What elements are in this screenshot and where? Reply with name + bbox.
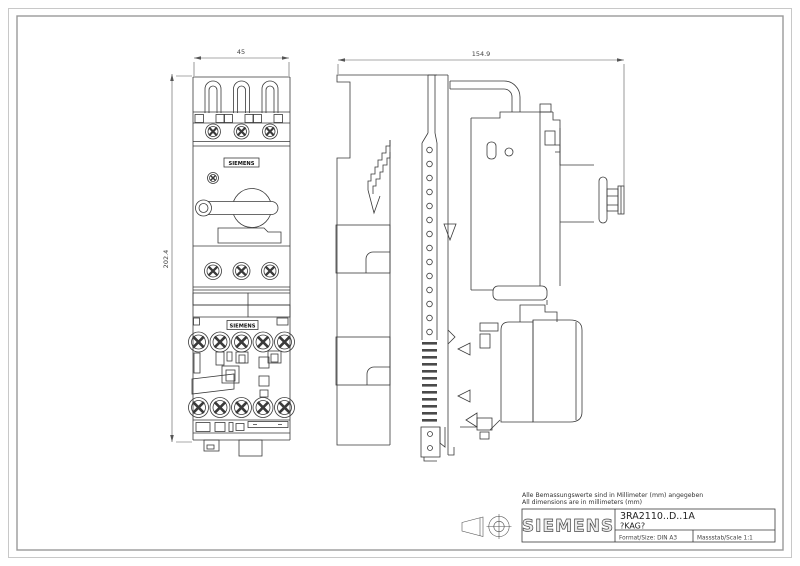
projection-symbol-icon	[462, 514, 512, 539]
dimension-overall-height: 202.4	[162, 74, 192, 442]
note-line-en: All dimensions are in millimeters (mm)	[522, 499, 642, 506]
front-terminal-band	[193, 112, 290, 123]
side-contactor-body	[448, 305, 582, 439]
scale-label: Massstab/Scale 1:1	[697, 536, 753, 542]
drawing-sheet: SIEMENS SIEMENS	[0, 0, 800, 566]
product-number: 3RA2110..D..1A	[620, 511, 695, 522]
front-bottom-tabs	[204, 440, 262, 456]
front-view: SIEMENS SIEMENS	[189, 77, 295, 456]
sheet-border	[9, 9, 792, 558]
dim-overall-depth-value: 154.9	[472, 50, 491, 58]
note-line-de: Alle Bemassungswerte sind in Millimeter …	[522, 492, 703, 499]
dim-overall-height-value: 202.4	[162, 250, 170, 269]
title-block: SIEMENS 3RA2110..D..1A ?KAG? Format/Size…	[522, 509, 775, 542]
side-rotary-shaft	[599, 177, 624, 223]
siemens-logo: SIEMENS	[522, 517, 614, 537]
rotary-handle	[196, 189, 279, 228]
rail-hole-strip	[427, 147, 433, 335]
rail-fins	[422, 342, 437, 422]
side-rail	[421, 75, 454, 461]
dim-front-width-value: 45	[237, 48, 245, 56]
variant-code: ?KAG?	[620, 522, 645, 531]
front-terminal-pins	[205, 81, 278, 113]
front-bottom-band	[193, 420, 290, 433]
dimension-front-width: 45	[194, 48, 289, 76]
side-breaker-body	[444, 81, 594, 305]
device-brand-label-upper: SIEMENS	[224, 158, 259, 167]
device-brand-text-upper: SIEMENS	[229, 161, 255, 167]
general-note: Alle Bemassungswerte sind in Millimeter …	[522, 492, 703, 506]
format-label: Format/Size: DIN A3	[619, 536, 677, 542]
side-view	[336, 75, 624, 461]
contactor-mechanism	[192, 351, 281, 397]
device-brand-text-lower: SIEMENS	[230, 324, 256, 330]
technical-drawing: SIEMENS SIEMENS	[0, 0, 800, 566]
device-brand-label-lower: SIEMENS	[227, 321, 258, 330]
nameplate	[218, 228, 281, 243]
